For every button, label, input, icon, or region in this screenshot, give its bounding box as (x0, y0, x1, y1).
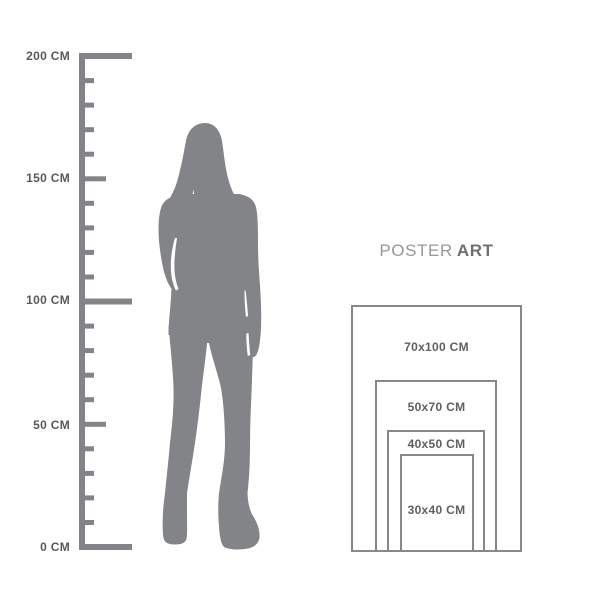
silhouette-legs (163, 326, 260, 549)
silhouette-torso (165, 194, 255, 335)
standing-woman-silhouette-icon (156, 120, 266, 550)
ruler-label-150: 150 CM (6, 170, 70, 186)
ruler-mark-200 (79, 53, 132, 59)
ruler-label-200: 200 CM (6, 48, 70, 64)
ruler-mark-150 (79, 176, 106, 181)
poster-size-label-70x100: 70x100 CM (351, 339, 522, 355)
ruler-mark-50 (79, 422, 106, 427)
poster-size-label-30x40: 30x40 CM (351, 502, 522, 518)
poster-size-label-40x50: 40x50 CM (351, 436, 522, 452)
ruler-label-100: 100 CM (6, 292, 70, 308)
brand-title-bold: ART (457, 241, 494, 260)
brand-title-regular: POSTER (379, 241, 453, 260)
ruler-label-50: 50 CM (6, 417, 70, 433)
ruler-mark-100 (79, 299, 132, 305)
size-guide-infographic: 200 CM 150 CM 100 CM 50 CM 0 CM POSTERAR… (0, 0, 600, 600)
brand-title: POSTERART (341, 241, 532, 261)
ruler-label-0: 0 CM (6, 539, 70, 555)
poster-size-label-50x70: 50x70 CM (351, 399, 522, 415)
ruler-mark-0 (79, 544, 132, 550)
